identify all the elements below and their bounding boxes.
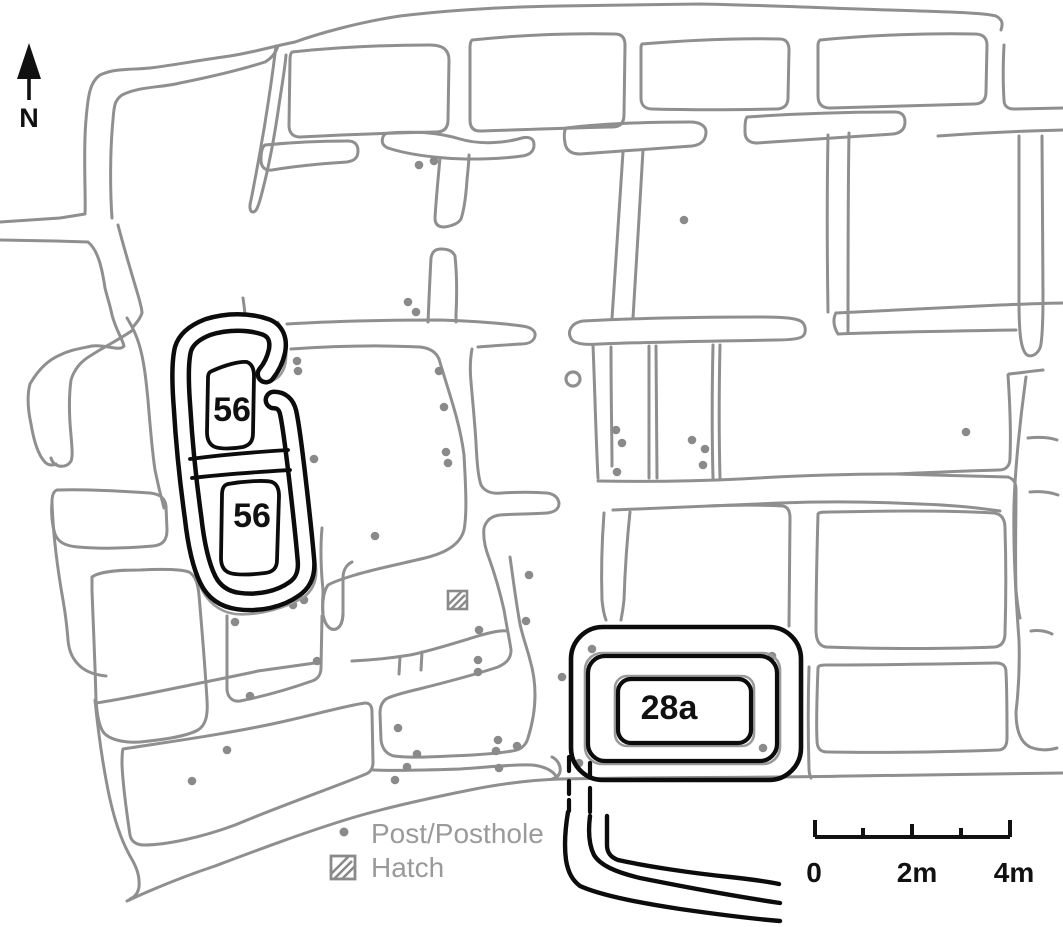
svg-text:0: 0 [806, 857, 822, 888]
svg-text:28a: 28a [641, 689, 699, 727]
svg-text:56: 56 [213, 391, 251, 429]
svg-text:2m: 2m [897, 857, 937, 888]
svg-text:Hatch: Hatch [371, 852, 444, 883]
svg-text:Post/Posthole: Post/Posthole [371, 818, 544, 849]
svg-text:N: N [19, 103, 39, 133]
svg-text:4m: 4m [994, 857, 1034, 888]
svg-text:56: 56 [233, 497, 271, 535]
